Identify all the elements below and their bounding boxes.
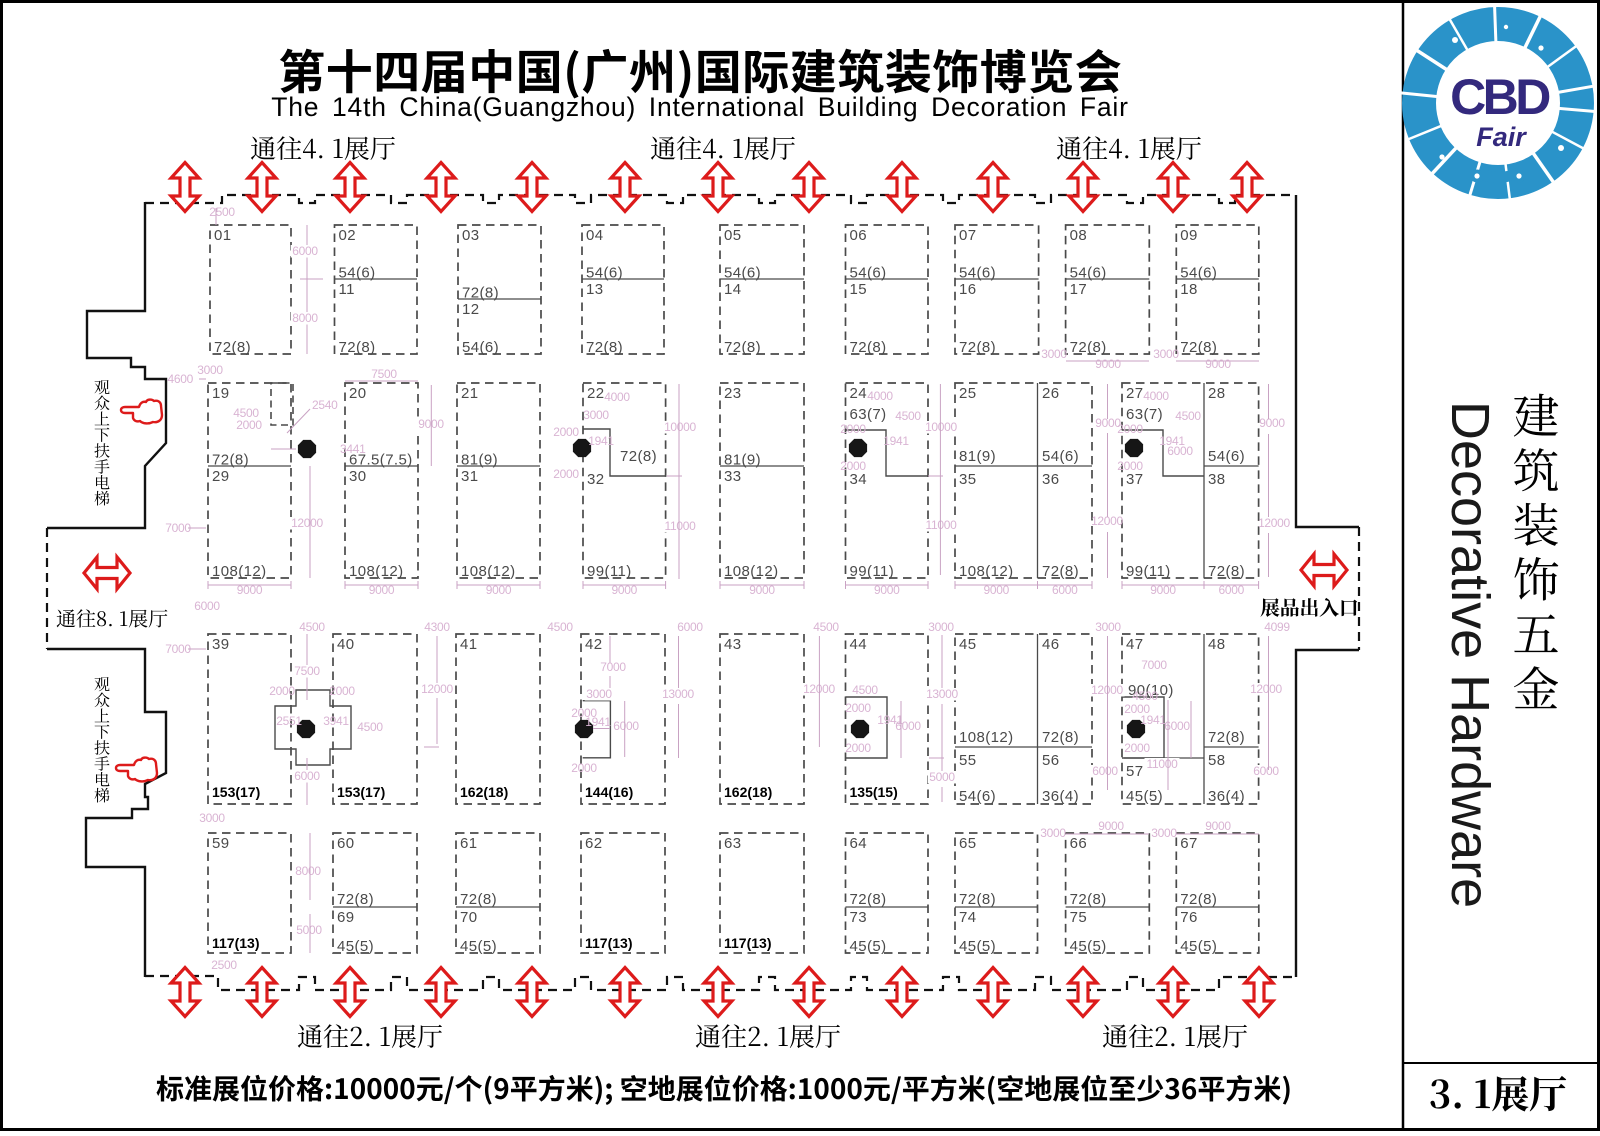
svg-text:72(8): 72(8)	[959, 891, 996, 908]
svg-text:7000: 7000	[1141, 658, 1167, 672]
svg-text:45(5): 45(5)	[959, 938, 996, 955]
svg-text:4500: 4500	[357, 720, 383, 734]
svg-text:7000: 7000	[165, 642, 191, 656]
svg-text:6000: 6000	[292, 244, 318, 258]
svg-text:72(8): 72(8)	[1180, 339, 1217, 356]
svg-text:16: 16	[959, 281, 977, 298]
svg-text:54(6): 54(6)	[850, 265, 887, 282]
svg-text:6000: 6000	[194, 599, 220, 613]
svg-text:26: 26	[1042, 385, 1060, 402]
svg-text:2551: 2551	[276, 714, 302, 728]
svg-text:3000: 3000	[199, 811, 225, 825]
svg-text:12: 12	[462, 301, 480, 318]
svg-text:69: 69	[337, 909, 355, 926]
svg-text:54(6): 54(6)	[1070, 265, 1107, 282]
svg-text:3000: 3000	[586, 687, 612, 701]
svg-text:15: 15	[850, 281, 868, 298]
svg-text:57: 57	[1126, 763, 1144, 780]
svg-text:3000: 3000	[928, 620, 954, 634]
svg-text:9000: 9000	[1150, 583, 1176, 597]
svg-text:2000: 2000	[269, 684, 295, 698]
svg-text:6000: 6000	[1052, 583, 1078, 597]
svg-text:54(6): 54(6)	[586, 265, 623, 282]
svg-text:76: 76	[1180, 909, 1198, 926]
svg-text:05: 05	[724, 227, 742, 244]
svg-text:61: 61	[460, 835, 478, 852]
svg-text:108(12): 108(12)	[959, 729, 1014, 746]
svg-text:153(17): 153(17)	[337, 784, 385, 800]
svg-text:66: 66	[1070, 835, 1088, 852]
svg-text:4500: 4500	[1132, 689, 1158, 703]
svg-text:54(6): 54(6)	[1208, 448, 1245, 465]
svg-text:2000: 2000	[236, 418, 262, 432]
svg-text:6000: 6000	[1092, 764, 1118, 778]
svg-text:117(13): 117(13)	[212, 935, 259, 951]
svg-text:2000: 2000	[840, 422, 866, 436]
svg-text:74: 74	[959, 909, 977, 926]
svg-text:3000: 3000	[1095, 620, 1121, 634]
svg-text:37: 37	[1126, 471, 1144, 488]
svg-text:45(5): 45(5)	[850, 938, 887, 955]
svg-text:99(11): 99(11)	[850, 563, 895, 580]
svg-text:07: 07	[959, 227, 977, 244]
svg-text:153(17): 153(17)	[212, 784, 260, 800]
svg-text:55: 55	[959, 752, 977, 769]
svg-text:9000: 9000	[1205, 357, 1231, 371]
svg-text:45(5): 45(5)	[1180, 938, 1217, 955]
svg-text:162(18): 162(18)	[460, 784, 508, 800]
svg-text:4300: 4300	[424, 620, 450, 634]
svg-text:13: 13	[586, 281, 604, 298]
svg-text:19: 19	[212, 385, 230, 402]
svg-text:3000: 3000	[583, 408, 609, 422]
svg-text:108(12): 108(12)	[724, 563, 779, 580]
svg-text:72(8): 72(8)	[1208, 563, 1245, 580]
svg-text:01: 01	[214, 227, 232, 244]
svg-text:108(12): 108(12)	[349, 563, 404, 580]
svg-text:9000: 9000	[1098, 819, 1124, 833]
svg-text:2500: 2500	[211, 958, 237, 972]
svg-text:56: 56	[1042, 752, 1060, 769]
svg-text:4500: 4500	[813, 620, 839, 634]
svg-text:2500: 2500	[209, 205, 235, 219]
svg-text:4500: 4500	[299, 620, 325, 634]
svg-text:6000: 6000	[1167, 444, 1193, 458]
svg-text:40: 40	[337, 636, 355, 653]
svg-text:54(6): 54(6)	[1180, 265, 1217, 282]
svg-text:36(4): 36(4)	[1208, 788, 1245, 805]
svg-text:162(18): 162(18)	[724, 784, 772, 800]
svg-text:7000: 7000	[600, 660, 626, 674]
svg-text:7500: 7500	[371, 367, 397, 381]
svg-text:27: 27	[1126, 385, 1144, 402]
svg-text:2540: 2540	[312, 398, 338, 412]
svg-text:18: 18	[1180, 281, 1198, 298]
svg-text:63(7): 63(7)	[1126, 406, 1163, 423]
svg-text:54(6): 54(6)	[724, 265, 761, 282]
svg-text:11000: 11000	[665, 519, 697, 533]
svg-text:6000: 6000	[677, 620, 703, 634]
svg-text:4500: 4500	[852, 683, 878, 697]
svg-text:4600: 4600	[168, 372, 194, 386]
svg-text:6000: 6000	[895, 719, 921, 733]
svg-text:63: 63	[724, 835, 742, 852]
svg-text:14: 14	[724, 281, 742, 298]
svg-text:CBD: CBD	[1450, 69, 1550, 125]
svg-text:72(8): 72(8)	[620, 448, 657, 465]
svg-text:4500: 4500	[547, 620, 573, 634]
svg-text:Decorative Hardware: Decorative Hardware	[1440, 401, 1500, 908]
svg-text:10000: 10000	[664, 420, 696, 434]
svg-text:72(8): 72(8)	[212, 452, 249, 469]
svg-text:54(6): 54(6)	[339, 265, 376, 282]
svg-text:38: 38	[1208, 471, 1226, 488]
svg-text:72(8): 72(8)	[337, 891, 374, 908]
svg-text:20: 20	[349, 385, 367, 402]
svg-text:72(8): 72(8)	[724, 339, 761, 356]
svg-text:9000: 9000	[749, 583, 775, 597]
svg-text:2000: 2000	[845, 741, 871, 755]
svg-text:81(9): 81(9)	[959, 448, 996, 465]
svg-text:99(11): 99(11)	[587, 563, 632, 580]
svg-text:72(8): 72(8)	[586, 339, 623, 356]
svg-text:39: 39	[212, 636, 230, 653]
svg-text:135(15): 135(15)	[850, 784, 898, 800]
svg-text:108(12): 108(12)	[212, 563, 267, 580]
svg-text:54(6): 54(6)	[959, 788, 996, 805]
svg-text:64: 64	[850, 835, 868, 852]
svg-text:36: 36	[1042, 471, 1060, 488]
svg-text:12000: 12000	[291, 516, 323, 530]
svg-text:10000: 10000	[925, 420, 957, 434]
svg-text:9000: 9000	[369, 583, 395, 597]
svg-text:46: 46	[1042, 636, 1060, 653]
svg-text:9000: 9000	[237, 583, 263, 597]
svg-text:3000: 3000	[1040, 826, 1066, 840]
svg-text:9000: 9000	[612, 583, 638, 597]
svg-text:59: 59	[212, 835, 230, 852]
svg-text:45(5): 45(5)	[460, 938, 497, 955]
svg-text:2000: 2000	[1117, 459, 1143, 473]
svg-text:25: 25	[959, 385, 977, 402]
svg-text:72(8): 72(8)	[1042, 729, 1079, 746]
svg-text:108(12): 108(12)	[461, 563, 516, 580]
svg-text:22: 22	[587, 385, 605, 402]
svg-text:54(6): 54(6)	[959, 265, 996, 282]
svg-text:3941: 3941	[323, 714, 349, 728]
svg-text:5000: 5000	[296, 923, 322, 937]
svg-text:21: 21	[461, 385, 479, 402]
svg-text:70: 70	[460, 909, 478, 926]
svg-text:17: 17	[1070, 281, 1088, 298]
svg-text:2000: 2000	[1124, 741, 1150, 755]
svg-text:1941: 1941	[588, 434, 614, 448]
svg-text:45(5): 45(5)	[337, 938, 374, 955]
svg-text:13000: 13000	[662, 687, 694, 701]
svg-text:Fair: Fair	[1476, 122, 1527, 152]
svg-text:45(5): 45(5)	[1070, 938, 1107, 955]
svg-text:2000: 2000	[329, 684, 355, 698]
svg-text:32: 32	[587, 471, 605, 488]
svg-text:6000: 6000	[1253, 764, 1279, 778]
svg-text:1941: 1941	[883, 434, 909, 448]
svg-text:4099: 4099	[1264, 620, 1290, 634]
svg-text:108(12): 108(12)	[959, 563, 1014, 580]
svg-text:12000: 12000	[1250, 682, 1282, 696]
svg-text:3000: 3000	[1151, 826, 1177, 840]
svg-text:35: 35	[959, 471, 977, 488]
svg-text:9000: 9000	[1095, 357, 1121, 371]
svg-text:117(13): 117(13)	[724, 935, 771, 951]
svg-text:8000: 8000	[292, 311, 318, 325]
svg-text:44: 44	[850, 636, 868, 653]
svg-text:11: 11	[339, 281, 355, 298]
svg-text:60: 60	[337, 835, 355, 852]
svg-text:7000: 7000	[165, 521, 191, 535]
svg-text:6000: 6000	[613, 719, 639, 733]
svg-text:24: 24	[850, 385, 868, 402]
svg-text:48: 48	[1208, 636, 1226, 653]
svg-text:58: 58	[1208, 752, 1226, 769]
svg-text:5000: 5000	[929, 770, 955, 784]
svg-text:72(8): 72(8)	[1180, 891, 1217, 908]
svg-text:72(8): 72(8)	[460, 891, 497, 908]
svg-text:1941: 1941	[585, 715, 611, 729]
svg-text:9000: 9000	[984, 583, 1010, 597]
svg-text:67: 67	[1180, 835, 1198, 852]
svg-text:09: 09	[1180, 227, 1198, 244]
svg-text:3000: 3000	[1041, 347, 1067, 361]
svg-text:54(6): 54(6)	[1042, 448, 1079, 465]
svg-text:03: 03	[462, 227, 480, 244]
svg-text:81(9): 81(9)	[461, 452, 498, 469]
svg-text:65: 65	[959, 835, 977, 852]
svg-text:4000: 4000	[867, 389, 893, 403]
svg-text:75: 75	[1070, 909, 1088, 926]
svg-text:23: 23	[724, 385, 742, 402]
svg-text:73: 73	[850, 909, 868, 926]
svg-text:9000: 9000	[1259, 416, 1285, 430]
svg-text:117(13): 117(13)	[585, 935, 632, 951]
svg-text:1941: 1941	[1140, 713, 1166, 727]
svg-text:72(8): 72(8)	[850, 339, 887, 356]
svg-text:54(6): 54(6)	[462, 339, 499, 356]
svg-text:08: 08	[1070, 227, 1088, 244]
svg-text:72(8): 72(8)	[959, 339, 996, 356]
svg-text:8000: 8000	[295, 864, 321, 878]
svg-text:2000: 2000	[845, 701, 871, 715]
svg-text:28: 28	[1208, 385, 1226, 402]
svg-text:04: 04	[586, 227, 604, 244]
svg-text:36(4): 36(4)	[1042, 788, 1079, 805]
svg-text:12000: 12000	[1258, 516, 1290, 530]
svg-text:72(8): 72(8)	[339, 339, 376, 356]
svg-text:62: 62	[585, 835, 603, 852]
svg-text:72(8): 72(8)	[1208, 729, 1245, 746]
svg-text:3000: 3000	[197, 363, 223, 377]
svg-text:144(16): 144(16)	[585, 784, 633, 800]
svg-text:45(5): 45(5)	[1126, 788, 1163, 805]
svg-text:42: 42	[585, 636, 603, 653]
svg-text:4500: 4500	[1175, 409, 1201, 423]
svg-text:45: 45	[959, 636, 977, 653]
svg-text:2000: 2000	[1117, 422, 1143, 436]
svg-text:43: 43	[724, 636, 742, 653]
svg-text:33: 33	[724, 468, 742, 485]
svg-text:2000: 2000	[553, 467, 579, 481]
svg-text:12000: 12000	[421, 682, 453, 696]
svg-text:4000: 4000	[604, 390, 630, 404]
svg-text:72(8): 72(8)	[1070, 339, 1107, 356]
svg-text:34: 34	[850, 471, 868, 488]
svg-text:6000: 6000	[294, 769, 320, 783]
svg-text:29: 29	[212, 468, 230, 485]
svg-text:4000: 4000	[1143, 389, 1169, 403]
svg-text:72(8): 72(8)	[850, 891, 887, 908]
svg-text:47: 47	[1126, 636, 1144, 653]
svg-text:3441: 3441	[340, 442, 366, 456]
svg-text:11000: 11000	[1147, 757, 1179, 771]
svg-text:63(7): 63(7)	[850, 406, 887, 423]
svg-text:9000: 9000	[486, 583, 512, 597]
svg-text:72(8): 72(8)	[1070, 891, 1107, 908]
svg-text:11000: 11000	[926, 518, 958, 532]
svg-text:13000: 13000	[926, 687, 958, 701]
svg-text:7500: 7500	[294, 664, 320, 678]
svg-text:72(8): 72(8)	[214, 339, 251, 356]
svg-text:9000: 9000	[874, 583, 900, 597]
svg-text:2000: 2000	[553, 425, 579, 439]
svg-text:31: 31	[461, 468, 479, 485]
svg-text:4500: 4500	[895, 409, 921, 423]
svg-text:81(9): 81(9)	[724, 452, 761, 469]
svg-text:30: 30	[349, 468, 367, 485]
svg-text:72(8): 72(8)	[462, 285, 499, 302]
svg-text:6000: 6000	[1219, 583, 1245, 597]
svg-text:99(11): 99(11)	[1126, 563, 1171, 580]
svg-text:72(8): 72(8)	[1042, 563, 1079, 580]
svg-text:06: 06	[850, 227, 868, 244]
svg-text:2000: 2000	[840, 459, 866, 473]
svg-text:9000: 9000	[1205, 819, 1231, 833]
svg-text:The 14th China(Guangzhou) Inte: The 14th China(Guangzhou) International …	[271, 92, 1128, 122]
svg-text:3000: 3000	[1153, 347, 1179, 361]
svg-text:2000: 2000	[571, 761, 597, 775]
svg-text:02: 02	[339, 227, 357, 244]
svg-text:41: 41	[460, 636, 478, 653]
